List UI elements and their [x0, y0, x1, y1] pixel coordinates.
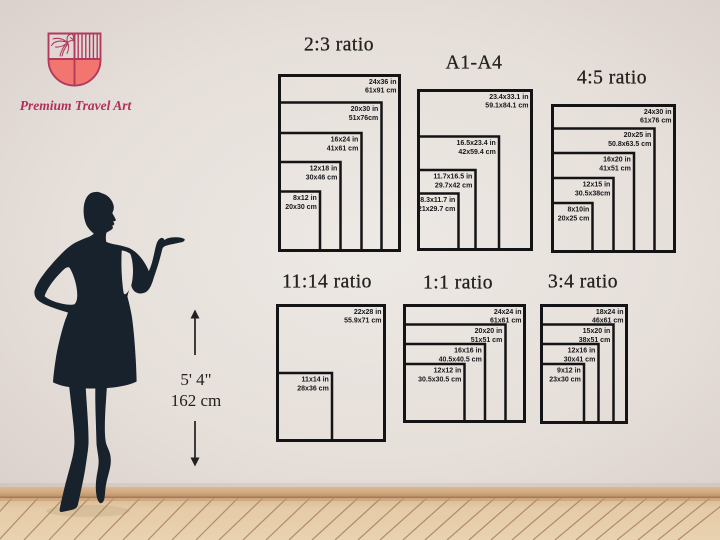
svg-text:55.9x71 cm: 55.9x71 cm — [344, 318, 381, 325]
svg-text:20x25 cm: 20x25 cm — [558, 216, 590, 223]
svg-text:11:14 ratio: 11:14 ratio — [282, 272, 372, 293]
svg-text:8.3x11.7 in: 8.3x11.7 in — [420, 197, 455, 204]
svg-text:30x41 cm: 30x41 cm — [564, 357, 596, 364]
svg-text:Premium Travel Art: Premium Travel Art — [20, 98, 133, 113]
svg-text:30.5x38cm: 30.5x38cm — [575, 191, 610, 198]
svg-text:51x76cm: 51x76cm — [349, 115, 379, 122]
svg-text:12x15 in: 12x15 in — [583, 182, 611, 189]
svg-text:24x24 in: 24x24 in — [494, 309, 522, 316]
svg-text:162 cm: 162 cm — [171, 391, 222, 410]
svg-text:20x20 in: 20x20 in — [475, 328, 503, 335]
svg-text:24x36 in: 24x36 in — [369, 79, 397, 86]
svg-text:61x91 cm: 61x91 cm — [365, 88, 397, 95]
svg-text:2:3 ratio: 2:3 ratio — [304, 35, 374, 56]
svg-text:29.7x42 cm: 29.7x42 cm — [435, 183, 472, 190]
svg-text:50.8x63.5 cm: 50.8x63.5 cm — [608, 141, 651, 148]
svg-text:30.5x30.5 cm: 30.5x30.5 cm — [418, 377, 461, 384]
svg-text:21x29.7 cm: 21x29.7 cm — [418, 206, 455, 213]
svg-text:18x24 in: 18x24 in — [596, 309, 624, 316]
svg-text:1:1 ratio: 1:1 ratio — [423, 273, 493, 294]
svg-text:9x12 in: 9x12 in — [557, 368, 581, 375]
svg-text:41x61 cm: 41x61 cm — [327, 146, 359, 153]
svg-text:12x18 in: 12x18 in — [310, 166, 338, 173]
svg-text:A1-A4: A1-A4 — [446, 53, 503, 74]
svg-text:4:5 ratio: 4:5 ratio — [577, 68, 647, 89]
svg-text:61x76 cm: 61x76 cm — [640, 118, 672, 125]
svg-text:15x20 in: 15x20 in — [583, 328, 611, 335]
svg-text:42x59.4 cm: 42x59.4 cm — [458, 149, 495, 156]
svg-text:8x12 in: 8x12 in — [293, 195, 317, 202]
svg-text:11x14 in: 11x14 in — [302, 377, 329, 384]
svg-text:16x24 in: 16x24 in — [331, 137, 359, 144]
svg-text:23x30 cm: 23x30 cm — [549, 377, 581, 384]
svg-text:24x30 in: 24x30 in — [644, 109, 672, 116]
svg-text:5' 4": 5' 4" — [180, 370, 211, 389]
svg-text:20x25 in: 20x25 in — [624, 132, 652, 139]
svg-text:20x30 in: 20x30 in — [351, 106, 379, 113]
svg-text:16x16 in: 16x16 in — [454, 348, 482, 355]
svg-text:28x36 cm: 28x36 cm — [297, 386, 329, 393]
svg-text:3:4 ratio: 3:4 ratio — [548, 272, 618, 293]
svg-text:41x51 cm: 41x51 cm — [599, 166, 631, 173]
svg-text:30x46 cm: 30x46 cm — [306, 175, 338, 182]
svg-text:22x28 in: 22x28 in — [354, 309, 382, 316]
svg-text:20x30 cm: 20x30 cm — [285, 204, 317, 211]
svg-text:59.1x84.1 cm: 59.1x84.1 cm — [485, 103, 528, 110]
svg-text:16x20 in: 16x20 in — [603, 157, 631, 164]
svg-text:40.5x40.5 cm: 40.5x40.5 cm — [439, 357, 482, 364]
svg-text:16.5x23.4 in: 16.5x23.4 in — [456, 140, 495, 147]
svg-text:8x10in: 8x10in — [568, 207, 590, 214]
svg-text:23.4x33.1 in: 23.4x33.1 in — [489, 94, 528, 101]
svg-text:11.7x16.5 in: 11.7x16.5 in — [433, 174, 472, 181]
svg-text:12x16 in: 12x16 in — [568, 348, 596, 355]
svg-text:12x12 in: 12x12 in — [434, 368, 462, 375]
